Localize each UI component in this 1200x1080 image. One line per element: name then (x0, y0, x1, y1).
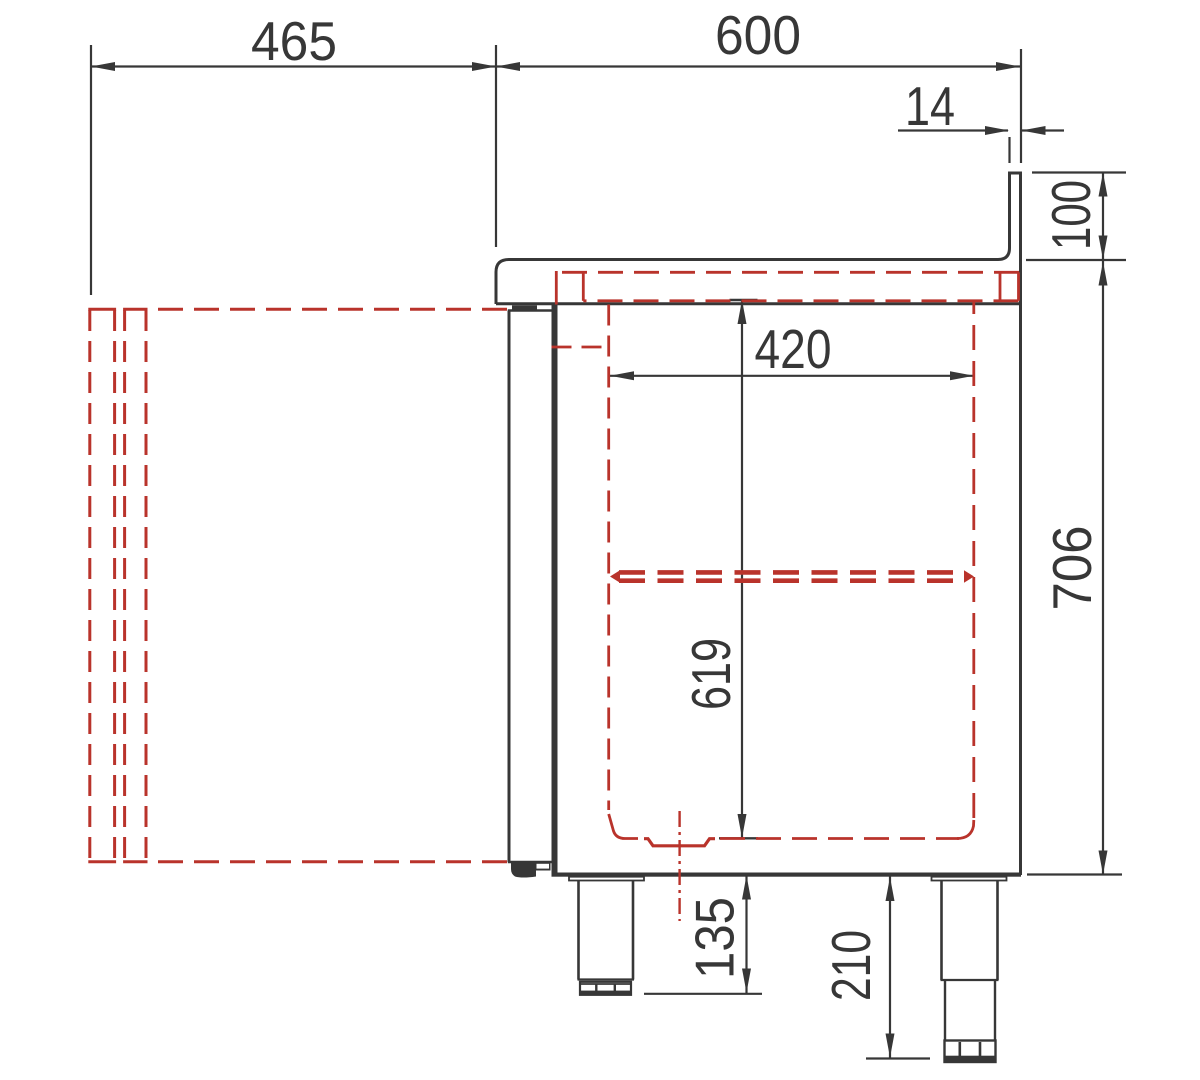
svg-text:465: 465 (251, 10, 337, 72)
svg-text:420: 420 (755, 318, 832, 380)
svg-text:135: 135 (684, 897, 746, 979)
svg-text:619: 619 (680, 638, 742, 710)
svg-text:100: 100 (1040, 180, 1102, 250)
svg-text:14: 14 (905, 75, 955, 137)
svg-text:706: 706 (1041, 526, 1103, 611)
svg-text:210: 210 (820, 930, 882, 1001)
svg-text:600: 600 (715, 4, 801, 66)
